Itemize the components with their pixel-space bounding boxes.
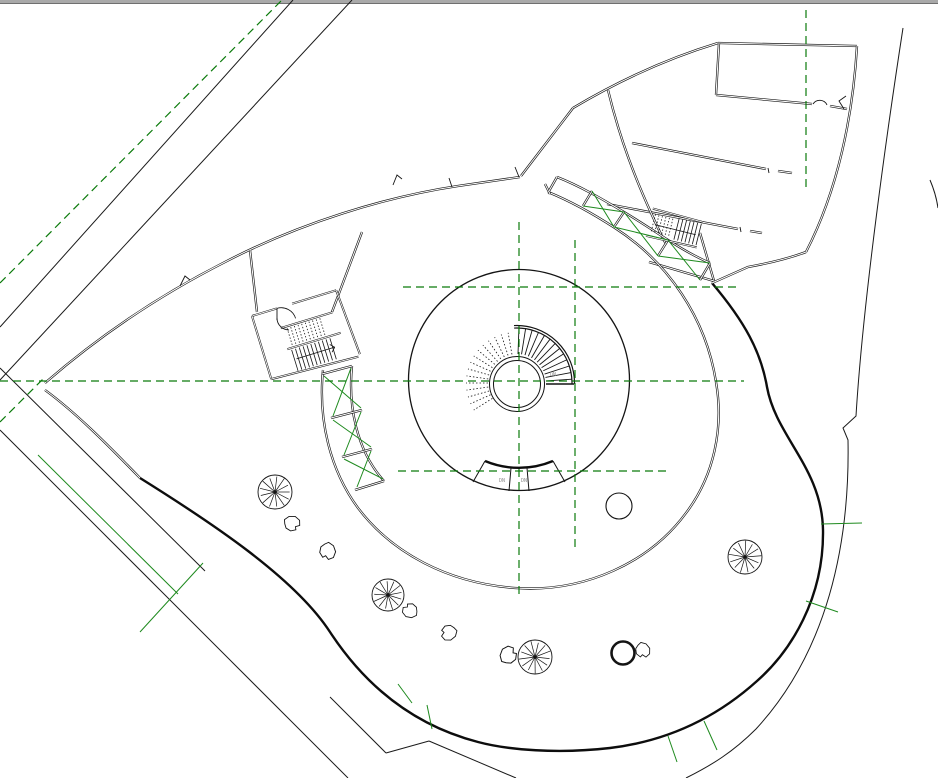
spiral-stair [466,326,575,411]
wall-notches [180,96,846,330]
tree-symbol [518,640,552,674]
site-circles [606,493,635,665]
shaft-band-left [322,366,384,490]
stair-right-wing [646,209,703,249]
rock-symbol [497,644,520,667]
trees [258,475,762,674]
tree-symbol [728,540,762,574]
shaft-band-right [549,177,710,280]
down-label: DN [499,478,505,484]
tree-symbol [372,579,404,611]
building-walls [45,43,857,589]
window-edge-bar [0,0,938,4]
down-label: DN [550,372,556,378]
site-boundary-lines [0,0,938,778]
revit-plan-view: DNDNDN [0,0,938,778]
plaza-edge [140,283,823,751]
drawing-canvas[interactable]: DNDNDN [0,0,938,778]
rock-symbol [318,541,336,560]
tree-symbol [258,475,292,509]
shaft-x-braces [324,191,710,487]
rock-symbol [283,515,301,533]
rock-symbol [401,601,420,620]
rock-symbol [438,622,459,643]
site-green-marks [38,455,862,762]
down-label: DN [521,478,527,484]
rock-symbol [633,640,653,660]
